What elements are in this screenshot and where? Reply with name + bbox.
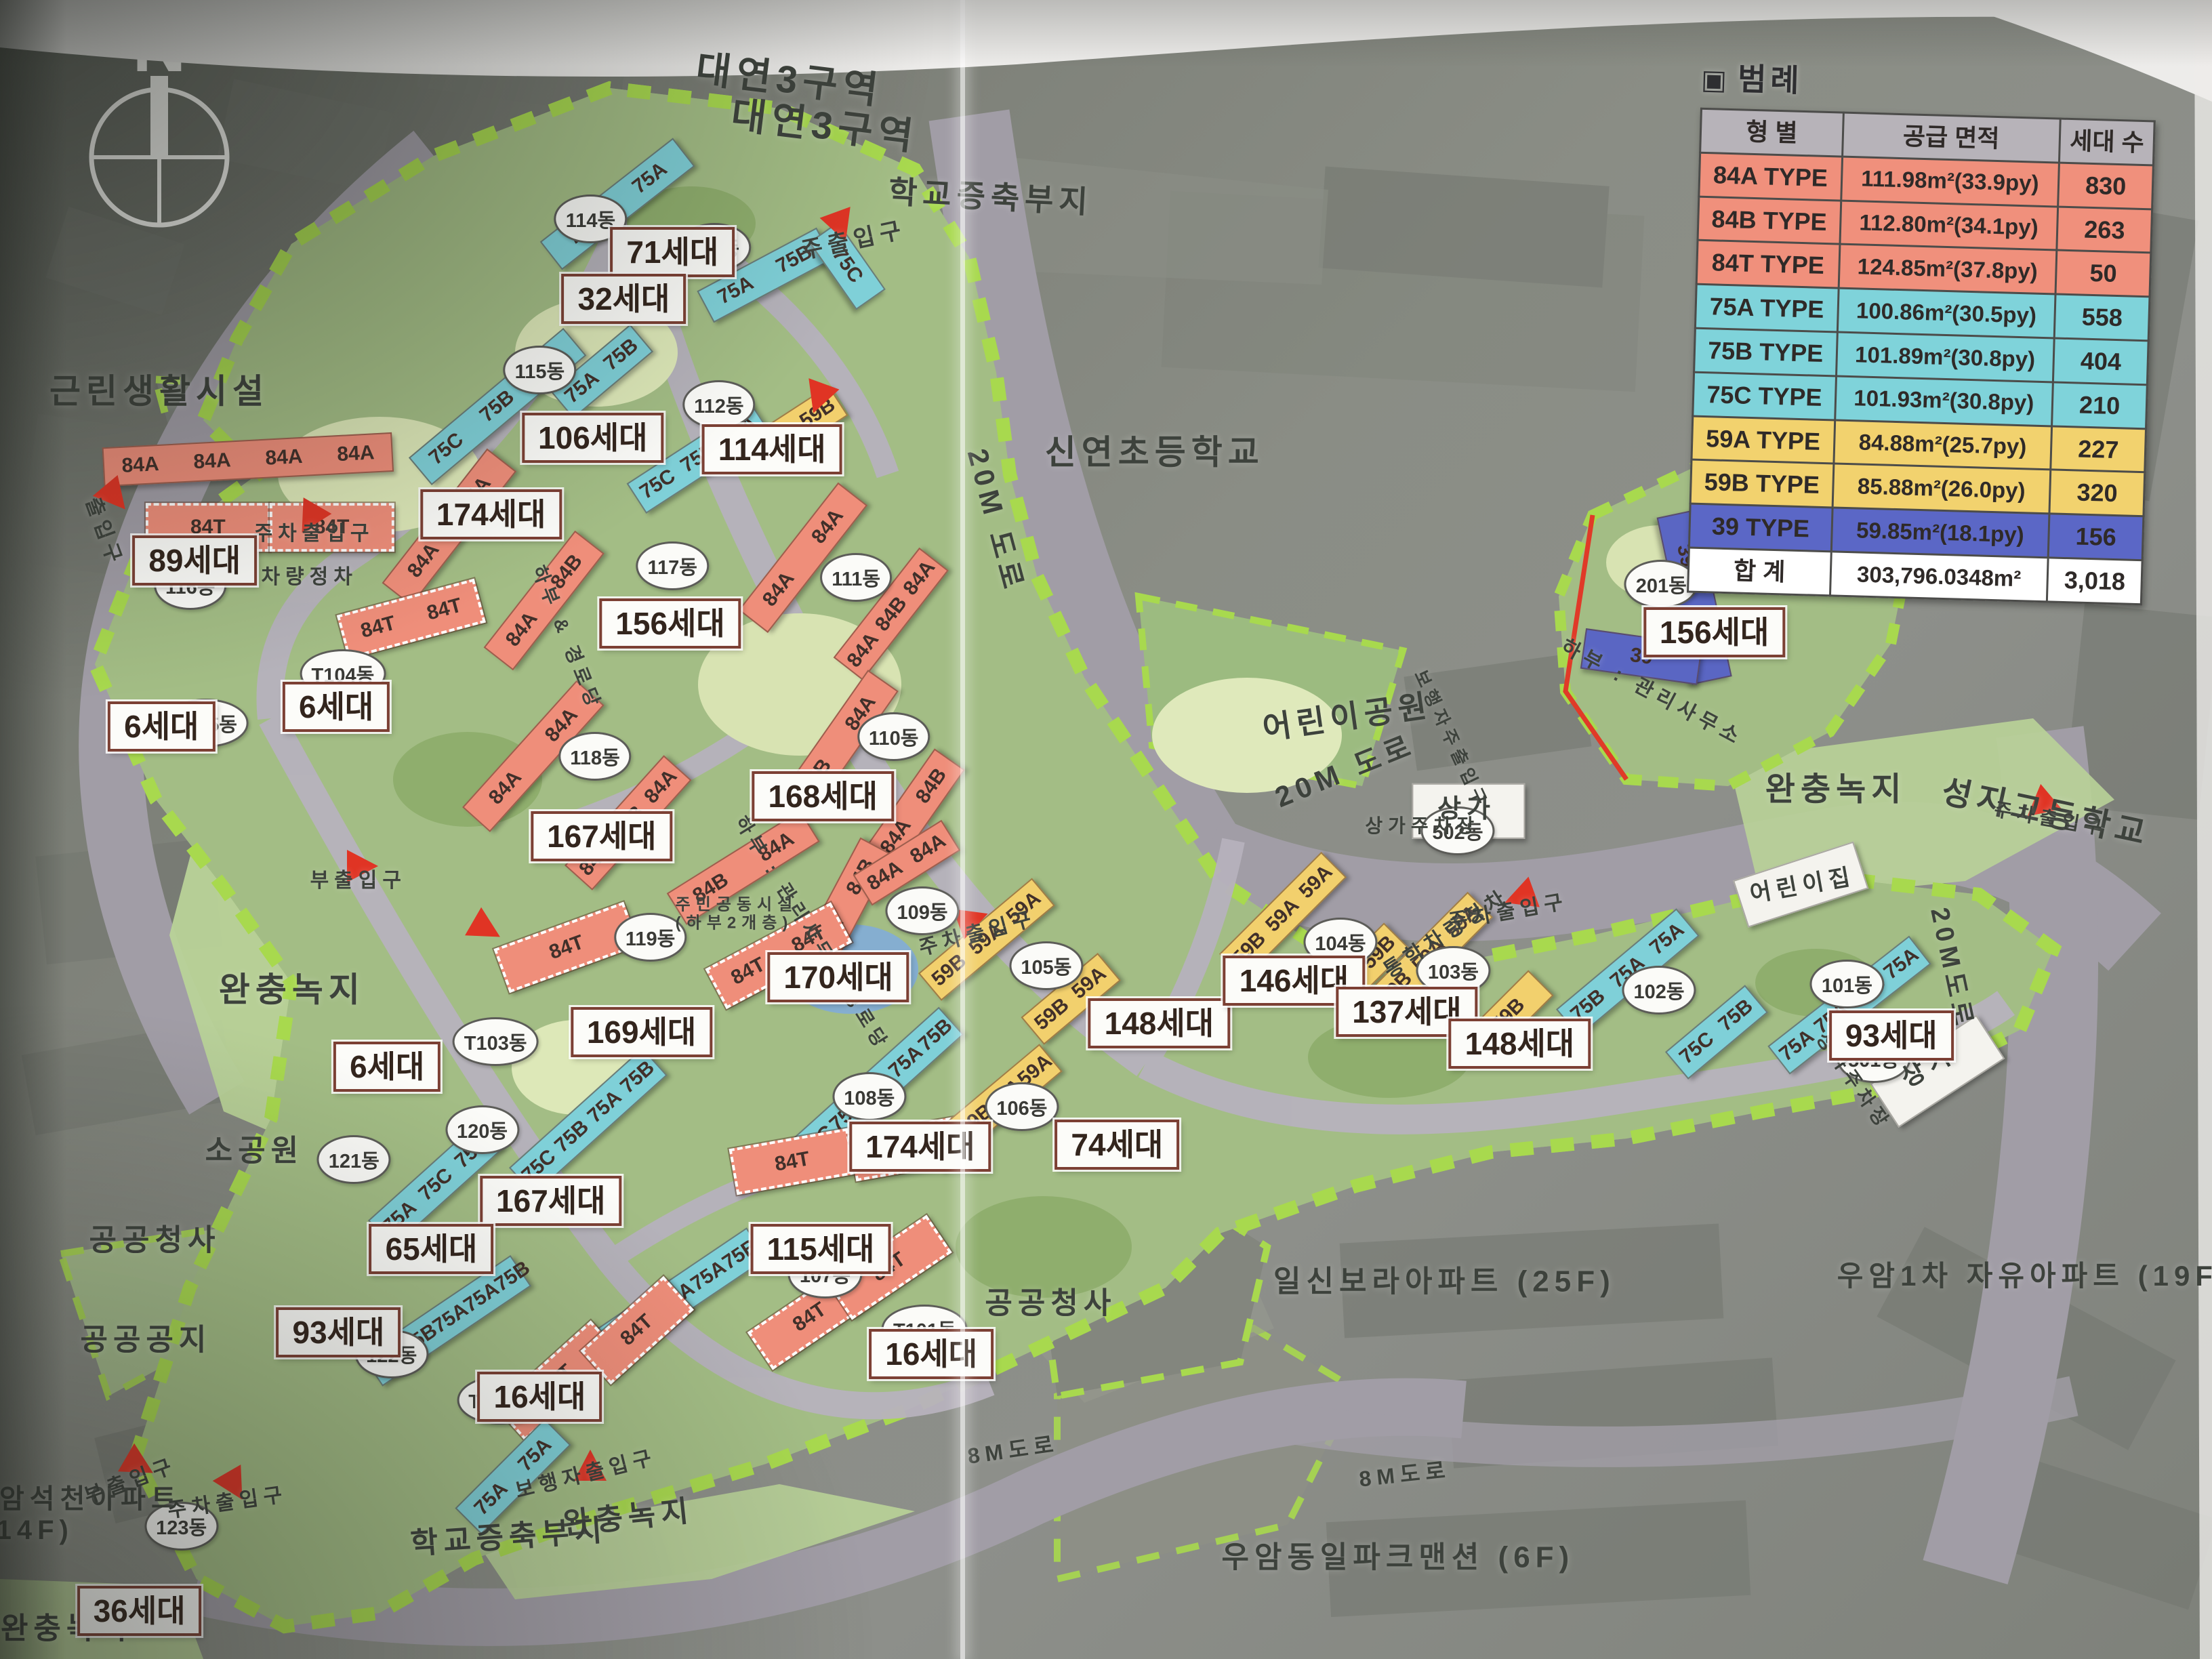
unit-count-label: 174세대: [420, 489, 562, 539]
legend-panel: ▣범례 형 별공급 면적세대 수84A TYPE111.98m²(33.9py)…: [1687, 54, 2157, 605]
unit-count-label: 6세대: [108, 701, 215, 752]
legend-cell-area: 124.85m²(37.8py): [1839, 245, 2057, 295]
unit-count-label: 156세대: [1643, 607, 1785, 657]
legend-cell-type: 84T TYPE: [1696, 241, 1839, 289]
unit-count-label: 16세대: [478, 1372, 602, 1422]
legend-cell-area: 85.88m²(26.0py): [1832, 464, 2051, 514]
unit-count-label: 174세대: [849, 1122, 991, 1172]
unit-count-label: 74세대: [1054, 1120, 1179, 1170]
legend-cell-count: 50: [2055, 251, 2151, 298]
unit-count-label: 93세대: [276, 1307, 401, 1357]
unit-count-label: 170세대: [767, 952, 909, 1002]
unit-count-label: 16세대: [869, 1329, 994, 1379]
legend-cell-area: 112.80m²(34.1py): [1840, 201, 2058, 251]
legend-cell-type: 합 계: [1688, 548, 1831, 596]
legend-cell-count: 830: [2058, 163, 2154, 209]
unit-count-label: 167세대: [531, 811, 672, 861]
unit-count-label: 106세대: [522, 413, 663, 463]
legend-icon: ▣: [1701, 65, 1732, 96]
unit-count-label: 6세대: [283, 682, 390, 732]
legend-cell-count: 320: [2049, 470, 2145, 516]
legend-cell-type: 75C TYPE: [1693, 372, 1836, 420]
legend-cell-area: 59.85m²(18.1py): [1831, 508, 2049, 558]
page-fold-line: [960, 0, 965, 1659]
site-plan-photo: N 75A75A75A75B75C75C75B75A75A75B75C75B75…: [0, 0, 2212, 1659]
legend-cell-type: 84B TYPE: [1698, 197, 1841, 245]
legend-header-cell: 공급 면적: [1842, 112, 2060, 163]
legend-table: 형 별공급 면적세대 수84A TYPE111.98m²(33.9py)8308…: [1687, 108, 2156, 605]
legend-cell-area: 84.88m²(25.7py): [1834, 420, 2052, 470]
legend-cell-area: 111.98m²(33.9py): [1841, 157, 2060, 207]
unit-count-label: 6세대: [333, 1042, 441, 1092]
legend-cell-count: 404: [2053, 338, 2149, 385]
unit-count-label: 148세대: [1449, 1019, 1591, 1069]
unit-count-label: 65세대: [369, 1224, 494, 1274]
unit-count-label: 167세대: [480, 1176, 621, 1226]
unit-count-label: 114세대: [702, 424, 842, 474]
legend-cell-type: 59B TYPE: [1690, 460, 1833, 508]
legend-cell-count: 210: [2052, 382, 2148, 429]
unit-count-label: 156세대: [599, 598, 741, 649]
legend-header-cell: 세대 수: [2060, 119, 2155, 165]
legend-cell-area: 303,796.0348m²: [1830, 552, 2048, 602]
unit-count-label: 169세대: [571, 1007, 712, 1057]
unit-count-label: 32세대: [562, 274, 687, 324]
unit-count-label: 36세대: [77, 1586, 202, 1636]
legend-cell-area: 100.86m²(30.5py): [1837, 288, 2055, 338]
legend-cell-type: 75A TYPE: [1696, 284, 1839, 332]
unit-count-label: 71세대: [610, 227, 735, 277]
legend-cell-count: 558: [2054, 294, 2150, 341]
legend-cell-type: 59A TYPE: [1692, 416, 1835, 464]
unit-count-label: 89세대: [132, 535, 257, 586]
legend-header-cell: 형 별: [1700, 108, 1843, 157]
unit-count-label: 168세대: [752, 771, 894, 821]
unit-count-label: 148세대: [1088, 998, 1230, 1048]
legend-cell-type: 75B TYPE: [1694, 328, 1837, 376]
legend-cell-count: 156: [2048, 514, 2144, 560]
legend-cell-area: 101.89m²(30.8py): [1836, 332, 2054, 382]
legend-cell-type: 84A TYPE: [1699, 152, 1842, 201]
legend-cell-count: 3,018: [2047, 558, 2143, 605]
legend-cell-count: 263: [2057, 207, 2152, 253]
legend-cell-type: 39 TYPE: [1689, 504, 1832, 552]
unit-count-label: 115세대: [751, 1224, 891, 1274]
legend-cell-area: 101.93m²(30.8py): [1835, 376, 2053, 426]
unit-count-label: 93세대: [1829, 1010, 1954, 1061]
legend-cell-count: 227: [2051, 426, 2146, 473]
